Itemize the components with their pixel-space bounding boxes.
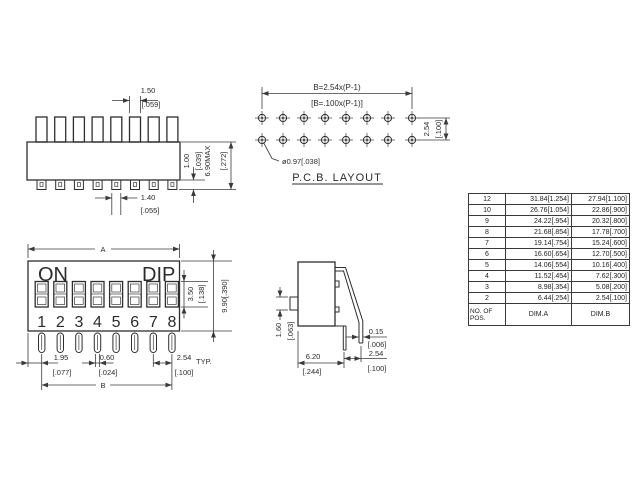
- dim-pin-width-mm: 1.40: [141, 193, 156, 202]
- switch-slider-top: [112, 284, 121, 292]
- side-body-outline: [298, 262, 335, 326]
- dim-lead-spacing-mm: 2.54: [369, 349, 384, 358]
- switch-slider-bottom: [93, 297, 102, 305]
- dim-a-cell: 21.68[.854]: [506, 227, 572, 238]
- dim-row-pitch-in: [.100]: [434, 120, 443, 139]
- bottom-pin-detail: [77, 183, 80, 187]
- pcb-hole: [339, 133, 353, 147]
- footer-pos-line2: POS.: [470, 315, 503, 322]
- dim-pin-thickness-in: [.006]: [368, 340, 387, 349]
- pcb-hole: [405, 133, 419, 147]
- bottom-pin-detail: [152, 183, 155, 187]
- dim-a-cell: 6.44[.254]: [506, 293, 572, 304]
- dim-body-depth: [298, 331, 344, 368]
- switch-number: 4: [93, 314, 102, 331]
- dim-actuator-height-mm: 1.60: [274, 323, 283, 338]
- hole-center-dot: [366, 139, 368, 141]
- dim-a-cell: 19.14[.754]: [506, 238, 572, 249]
- dim-body-depth-in: [.244]: [303, 367, 322, 376]
- pcb-hole: [381, 111, 395, 125]
- position-numbers: 12345678: [37, 314, 176, 331]
- straight-lead: [335, 326, 346, 350]
- pos-cell: 5: [469, 260, 506, 271]
- footer-pos-header: NO. OF POS.: [469, 304, 506, 326]
- dim-actuator-width-in: [.059]: [142, 100, 161, 109]
- dim-b-cell: 22.86[.900]: [572, 205, 630, 216]
- switch-slider-bottom: [75, 297, 84, 305]
- bent-lead: [335, 268, 363, 344]
- pcb-hole: [381, 133, 395, 147]
- bottom-pin: [168, 180, 177, 190]
- hole-center-dot: [303, 117, 305, 119]
- bottom-pin-detail: [171, 183, 174, 187]
- pos-cell: 8: [469, 227, 506, 238]
- bottom-pin: [37, 180, 46, 190]
- dim-b-cell: 15.24[.600]: [572, 238, 630, 249]
- pcb-hole: [405, 111, 419, 125]
- pcb-hole: [255, 133, 269, 147]
- pcb-hole: [318, 111, 332, 125]
- footer-dim-a-header: DIM.A: [506, 304, 572, 326]
- dim-lead-spacing-in: [.100]: [368, 364, 387, 373]
- dim-a-cell: 26.76[1.054]: [506, 205, 572, 216]
- dim-window-height-in: [.138]: [197, 285, 206, 304]
- dim-a-cell: 8.98[.354]: [506, 282, 572, 293]
- hole-center-dot: [387, 117, 389, 119]
- dim-actuator-height: [276, 287, 288, 320]
- dip-switch-drawing: 1.50 [.059] 1.00 [.039] 6.90MAX [.272] 1…: [0, 0, 640, 480]
- switch-number: 7: [149, 314, 158, 331]
- footer-pos-line1: NO. OF: [470, 308, 503, 315]
- pos-cell: 6: [469, 249, 506, 260]
- pcb-hole: [297, 111, 311, 125]
- actuator: [111, 117, 122, 142]
- switch-number: 3: [74, 314, 83, 331]
- dim-b-cell: 27.94[1.100]: [572, 194, 630, 205]
- dim-body-depth-mm: 6.20: [306, 352, 321, 361]
- typ-label: TYP.: [196, 357, 212, 366]
- pcb-hole: [276, 133, 290, 147]
- table-footer-row: NO. OF POS. DIM.A DIM.B: [469, 304, 630, 326]
- switch-slider-bottom: [168, 297, 177, 305]
- switch-number: 5: [112, 314, 121, 331]
- switch-slider-top: [75, 284, 84, 292]
- pos-cell: 3: [469, 282, 506, 293]
- dim-body-height: 9.90[.390]: [220, 279, 229, 312]
- pcb-hole: [360, 133, 374, 147]
- hole-center-dot: [411, 139, 413, 141]
- actuator: [73, 117, 84, 142]
- dim-a-cell: 24.22[.954]: [506, 216, 572, 227]
- dim-b-cell: 2.54[.100]: [572, 293, 630, 304]
- bottom-pin: [112, 180, 121, 190]
- actuator: [55, 117, 66, 142]
- dim-window-height-mm: 3.50: [186, 287, 195, 302]
- pos-cell: 10: [469, 205, 506, 216]
- dim-span-formula-mm: B=2.54x(P-1): [313, 83, 361, 92]
- pcb-hole: [339, 111, 353, 125]
- pos-cell: 2: [469, 293, 506, 304]
- side-elevation-view: 1.50 [.059] 1.00 [.039] 6.90MAX [.272] 1…: [27, 86, 236, 215]
- dim-b-cell: 10.16[.400]: [572, 260, 630, 271]
- actuator: [36, 117, 47, 142]
- dim-pin-width-in: [.055]: [141, 206, 160, 215]
- table-row: 38.98[.354]5.08[.200]: [469, 282, 630, 293]
- table-row: 924.22[.954]20.32[.800]: [469, 216, 630, 227]
- bottom-pin: [149, 180, 158, 190]
- hole-center-dot: [282, 117, 284, 119]
- front-view: ON DIP 12345678 A 3.50 [.138] 9.90[: [16, 244, 232, 390]
- hole-center-dot: [324, 117, 326, 119]
- pos-cell: 7: [469, 238, 506, 249]
- table-row: 1026.76[1.054]22.86[.900]: [469, 205, 630, 216]
- switch-number: 2: [56, 314, 65, 331]
- bottom-pin-detail: [115, 183, 118, 187]
- dim-actuator-width-mm: 1.50: [141, 86, 156, 95]
- dim-actuator-height-in: [.063]: [286, 322, 295, 341]
- hole-diameter-callout: ø0.97[.038]: [282, 157, 320, 166]
- hole-center-dot: [345, 117, 347, 119]
- pcb-layout-view: B=2.54x(P-1) [B=.100x(P-1)] 2.54 [.100] …: [255, 83, 450, 184]
- bottom-pin-detail: [134, 183, 137, 187]
- hole-center-dot: [366, 117, 368, 119]
- table-row: 719.14[.754]15.24[.600]: [469, 238, 630, 249]
- dim-b-cell: 5.08[.200]: [572, 282, 630, 293]
- switch-number: 6: [130, 314, 139, 331]
- hole-center-dot: [345, 139, 347, 141]
- table-row: 514.06[.554]10.16[.400]: [469, 260, 630, 271]
- pos-cell: 9: [469, 216, 506, 227]
- switch-slider-top: [130, 284, 139, 292]
- dim-pin-pitch-mm: 2.54: [177, 353, 192, 362]
- dim-end-offset-mm: 1.95: [54, 353, 69, 362]
- switch-slider-bottom: [56, 297, 65, 305]
- footer-dim-b-header: DIM.B: [572, 304, 630, 326]
- pos-cell: 12: [469, 194, 506, 205]
- dim-a-cell: 31.84[1.254]: [506, 194, 572, 205]
- hole-callout-leader: [264, 143, 280, 162]
- dimension-table: 1231.84[1.254]27.94[1.100]1026.76[1.054]…: [468, 193, 630, 326]
- label-on: ON: [38, 264, 68, 286]
- dip-body-outline: [27, 142, 180, 180]
- switch-slider-bottom: [112, 297, 121, 305]
- pcb-hole: [297, 133, 311, 147]
- dim-row-pitch-mm: 2.54: [422, 122, 431, 137]
- actuator: [130, 117, 141, 142]
- actuator: [167, 117, 178, 142]
- pcb-hole: [255, 111, 269, 125]
- bottom-pin: [74, 180, 83, 190]
- hole-center-dot: [411, 117, 413, 119]
- dim-front-pin-width-mm: 0.60: [100, 353, 115, 362]
- dim-b-cell: 12.70[.500]: [572, 249, 630, 260]
- dim-b-cell: 17.78[.700]: [572, 227, 630, 238]
- dim-pin-pitch-in: [.100]: [175, 368, 194, 377]
- switch-slider-bottom: [149, 297, 158, 305]
- dim-b-label: B: [100, 381, 105, 390]
- hole-center-dot: [261, 139, 263, 141]
- side-actuator-nub: [290, 297, 298, 310]
- dim-end-offset-in: [.077]: [53, 368, 72, 377]
- pcb-hole: [360, 111, 374, 125]
- dim-a-cell: 14.06[.554]: [506, 260, 572, 271]
- pcb-layout-title: P.C.B. LAYOUT: [292, 172, 382, 184]
- bottom-pin-detail: [59, 183, 62, 187]
- dim-pin-width: [95, 193, 138, 215]
- dim-pin-protrusion-in: [.039]: [194, 152, 203, 171]
- bottom-pin-detail: [40, 183, 43, 187]
- switch-slider-bottom: [130, 297, 139, 305]
- pcb-hole: [276, 111, 290, 125]
- side-view: 1.60 [.063] 6.20 [.244] 0.15 [.006] 2.54…: [274, 262, 387, 376]
- hole-center-dot: [324, 139, 326, 141]
- hole-center-dot: [261, 117, 263, 119]
- dim-pin-thickness-mm: 0.15: [369, 327, 384, 336]
- hole-center-dot: [282, 139, 284, 141]
- hole-center-dot: [303, 139, 305, 141]
- dim-pin-protrusion-mm: 1.00: [182, 154, 191, 169]
- table-row: 1231.84[1.254]27.94[1.100]: [469, 194, 630, 205]
- dim-a-cell: 16.60[.654]: [506, 249, 572, 260]
- switch-number: 8: [167, 314, 176, 331]
- front-pin-row: [39, 333, 176, 353]
- hole-pattern: [255, 111, 419, 147]
- bottom-pin: [131, 180, 140, 190]
- dim-front-pin-width-in: [.024]: [99, 368, 118, 377]
- pcb-hole: [318, 133, 332, 147]
- dim-b-cell: 7.62[.300]: [572, 271, 630, 282]
- switch-slider-top: [93, 284, 102, 292]
- dim-a-cell: 11.52[.454]: [506, 271, 572, 282]
- bottom-pin-row: [37, 180, 177, 190]
- switch-slider-bottom: [37, 297, 46, 305]
- hole-center-dot: [387, 139, 389, 141]
- table-row: 411.52[.454]7.62[.300]: [469, 271, 630, 282]
- actuator: [92, 117, 103, 142]
- dim-overall-height-in: [.272]: [219, 152, 228, 171]
- actuator-row: [36, 117, 178, 142]
- bottom-pin-detail: [96, 183, 99, 187]
- actuator: [148, 117, 159, 142]
- bottom-pin: [93, 180, 102, 190]
- table-row: 616.60[.654]12.70[.500]: [469, 249, 630, 260]
- dim-a-label: A: [100, 245, 105, 254]
- dim-span-formula-in: [B=.100x(P-1)]: [311, 99, 363, 108]
- pos-cell: 4: [469, 271, 506, 282]
- switch-number: 1: [37, 314, 46, 331]
- table-row: 821.68[.854]17.78[.700]: [469, 227, 630, 238]
- bottom-pin: [56, 180, 65, 190]
- dim-overall-height-mm: 6.90MAX: [203, 146, 212, 177]
- dim-b-cell: 20.32[.800]: [572, 216, 630, 227]
- table-row: 26.44[.254]2.54[.100]: [469, 293, 630, 304]
